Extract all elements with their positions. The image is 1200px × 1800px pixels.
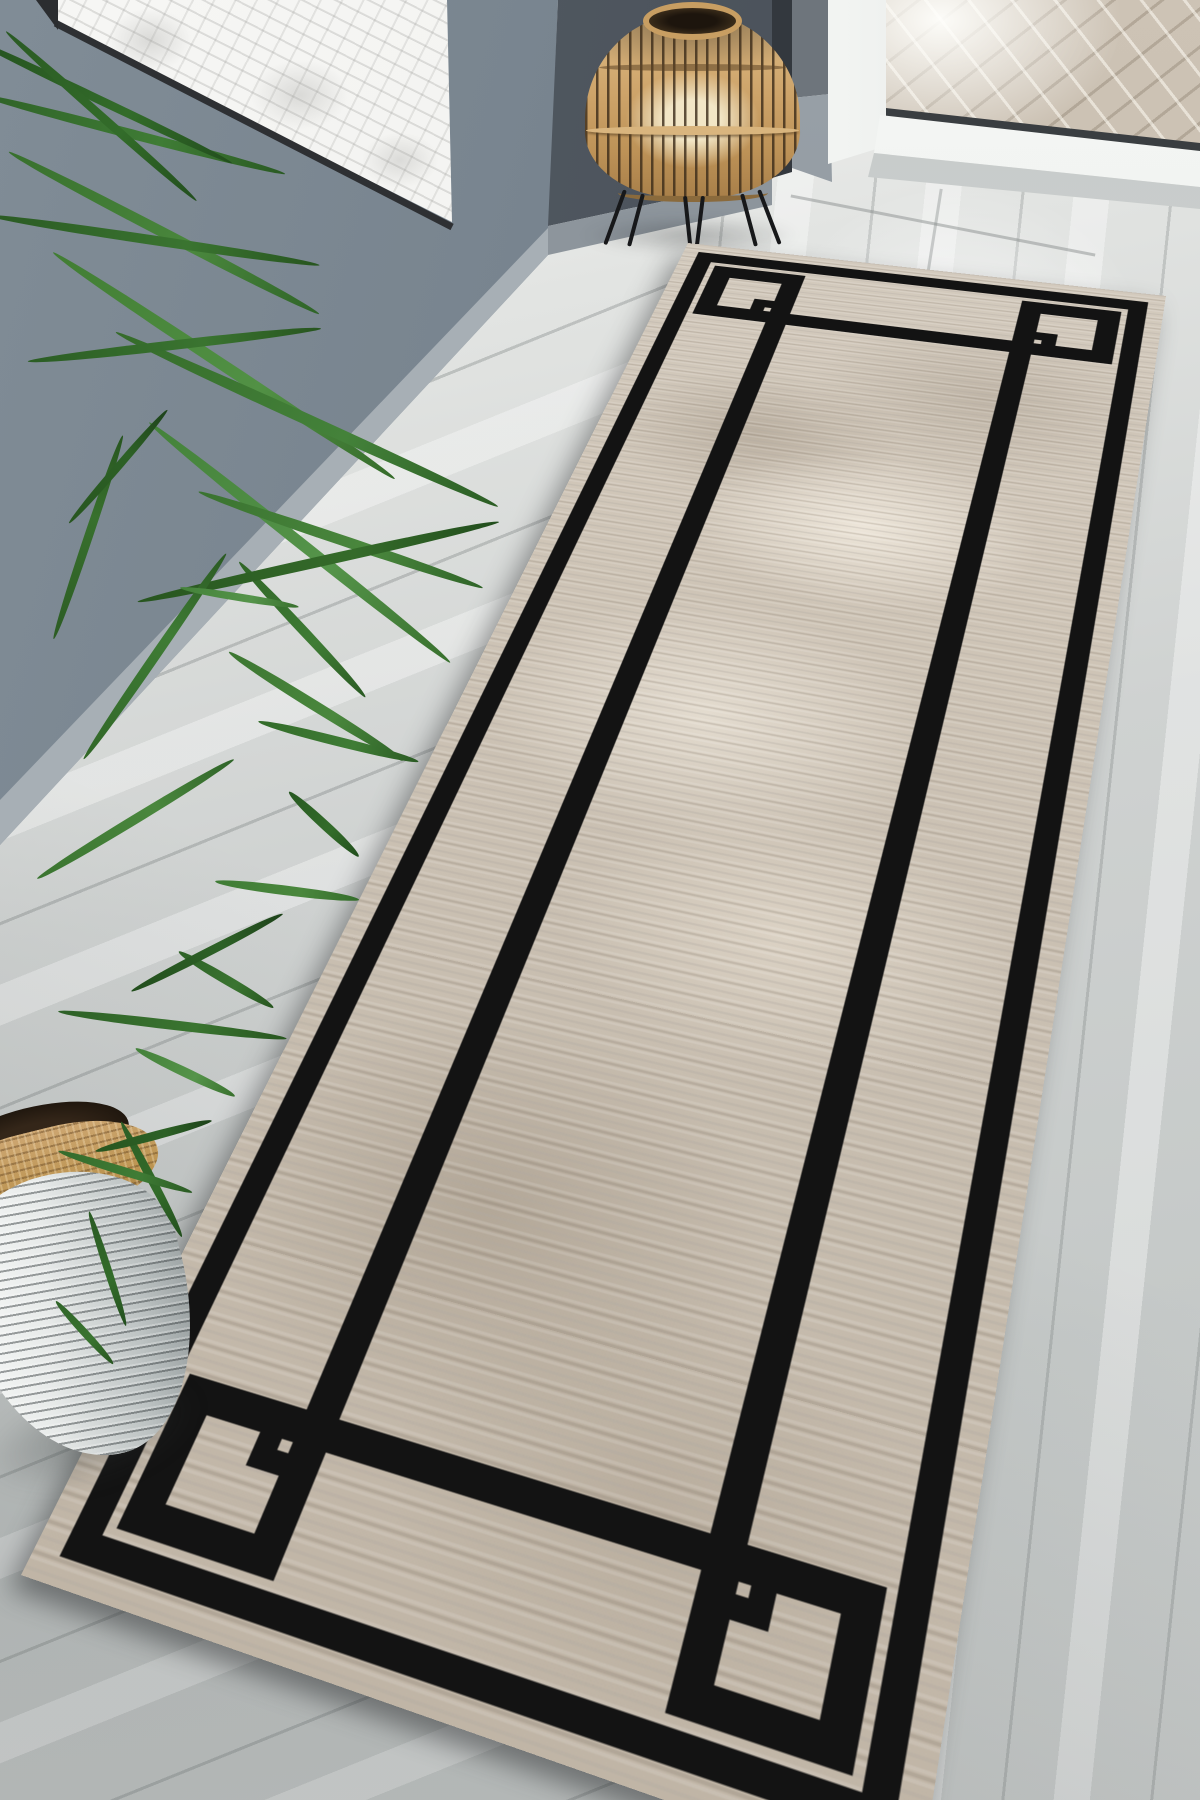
runner-rug [21,243,1166,1800]
rug-shadow [0,0,1200,1800]
rug-corner-small-square [745,299,794,325]
hallway-photo [0,0,1200,1800]
